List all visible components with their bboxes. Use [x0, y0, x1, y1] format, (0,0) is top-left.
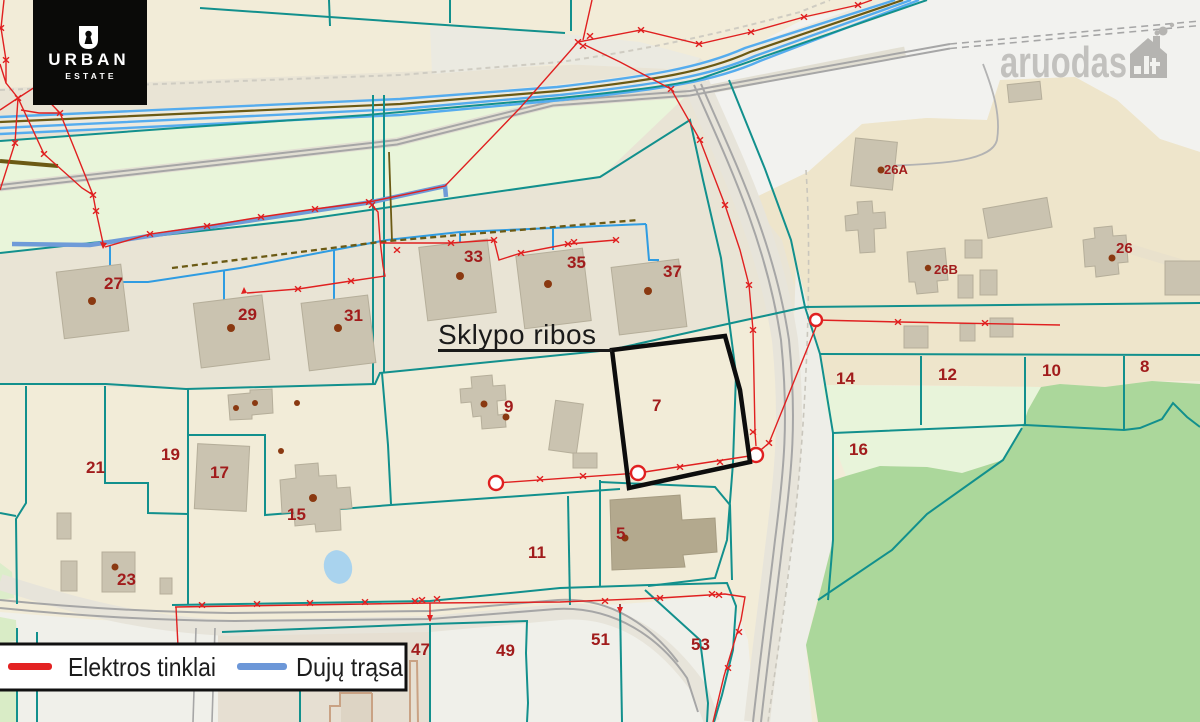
svg-text:19: 19 [161, 445, 180, 464]
svg-text:33: 33 [464, 247, 483, 266]
svg-text:35: 35 [567, 253, 586, 272]
svg-text:17: 17 [210, 463, 229, 482]
svg-text:14: 14 [836, 369, 855, 388]
svg-text:26B: 26B [934, 262, 958, 277]
svg-text:21: 21 [86, 458, 105, 477]
svg-text:Elektros tinklai: Elektros tinklai [68, 652, 216, 682]
svg-text:29: 29 [238, 305, 257, 324]
svg-text:53: 53 [691, 635, 710, 654]
svg-text:8: 8 [1140, 357, 1149, 376]
svg-text:ESTATE: ESTATE [65, 71, 116, 81]
svg-text:31: 31 [344, 306, 363, 325]
svg-text:9: 9 [504, 397, 513, 416]
svg-text:5: 5 [616, 524, 625, 543]
svg-text:7: 7 [652, 396, 661, 415]
svg-text:11: 11 [528, 543, 546, 562]
svg-text:URBAN: URBAN [48, 50, 129, 69]
svg-text:15: 15 [287, 505, 306, 524]
svg-text:47: 47 [411, 640, 430, 659]
svg-text:16: 16 [849, 440, 868, 459]
svg-text:51: 51 [591, 630, 610, 649]
svg-text:12: 12 [938, 365, 957, 384]
svg-text:27: 27 [104, 274, 123, 293]
svg-text:Sklypo ribos: Sklypo ribos [438, 319, 597, 350]
svg-text:26: 26 [1116, 240, 1133, 257]
svg-text:aruodas: aruodas [1000, 38, 1127, 87]
svg-text:Dujų trąsa: Dujų trąsa [296, 652, 403, 682]
svg-text:26A: 26A [884, 162, 908, 177]
svg-text:37: 37 [663, 262, 682, 281]
svg-text:10: 10 [1042, 361, 1061, 380]
svg-text:49: 49 [496, 641, 515, 660]
svg-text:23: 23 [117, 570, 136, 589]
